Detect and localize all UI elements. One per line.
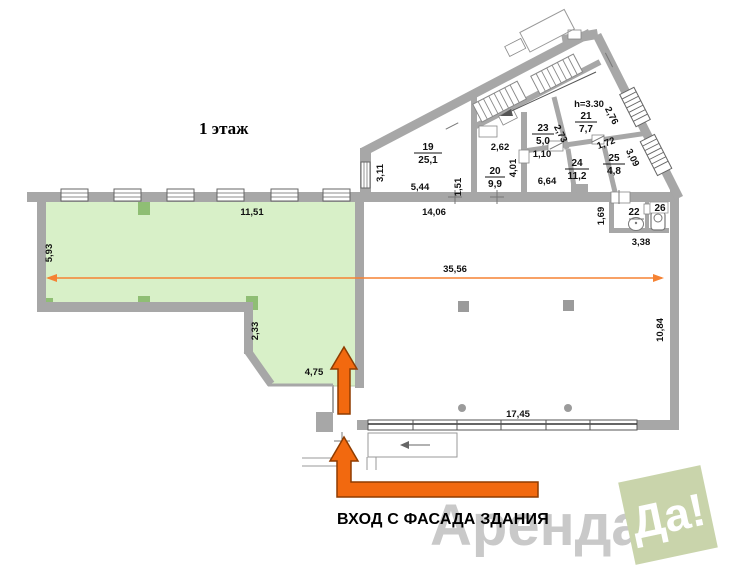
dim-r21-window: 2,76 [602, 105, 620, 126]
entrance-arrow-outer-icon [330, 437, 538, 497]
dim-hall-front: 17,45 [506, 409, 530, 420]
green-area [44, 196, 357, 386]
room-25-area: 4,8 [607, 166, 621, 177]
room-24-number: 24 [571, 158, 583, 169]
room-23-number: 23 [537, 123, 549, 134]
room-24-area: 11,2 [568, 171, 587, 182]
dim-green-step: 2,33 [250, 322, 261, 341]
dim-r20-right: 4,01 [508, 158, 519, 177]
toilet-icon [651, 212, 665, 230]
room-20-label: 20 9,9 [485, 166, 505, 190]
dim-hall-right: 10,84 [655, 317, 666, 341]
dim-hall-top: 14,06 [422, 207, 446, 218]
page-title: 1 этаж [199, 119, 249, 138]
dim-r19-bottom: 5,44 [411, 182, 430, 193]
room-21-label: 21 7,7 [575, 111, 597, 135]
dim-hall-length: 35,56 [443, 264, 467, 275]
room-21-number: 21 [580, 111, 592, 122]
dim-r20-top: 2,62 [491, 142, 510, 153]
room-26-number: 26 [654, 203, 666, 214]
columns [458, 300, 574, 412]
floor-plan-svg: 11,51 5,93 2,33 4,75 35,56 14,06 17,45 1… [0, 0, 752, 576]
floor-plan-page: 11,51 5,93 2,33 4,75 35,56 14,06 17,45 1… [0, 0, 752, 576]
entrance-caption: ВХОД С ФАСАДА ЗДАНИЯ [337, 511, 549, 528]
dim-r25-window: 3,09 [623, 147, 641, 168]
dim-green-top: 11,51 [240, 207, 264, 218]
room-19-label: 19 25,1 [414, 142, 442, 166]
porch-steps [302, 433, 457, 470]
window-band-bottom [368, 420, 637, 430]
window-diagonal-lower [640, 134, 672, 175]
dim-green-entry: 4,75 [305, 367, 324, 378]
dim-r21-height: h=3.30 [574, 99, 604, 110]
window-room19 [361, 162, 370, 188]
dim-r19-right: 1,51 [453, 177, 464, 196]
room-22-number: 22 [628, 207, 640, 218]
dim-corridor: 6,64 [538, 176, 557, 187]
dim-wc-left: 1,69 [596, 207, 607, 226]
watermark-badge: Да! [618, 465, 718, 565]
dim-arrowhead-right-icon [653, 274, 664, 282]
door-marks [479, 30, 650, 214]
dim-r23-door: 1,10 [533, 149, 552, 160]
room-25-number: 25 [608, 153, 620, 164]
dim-wc-bottom: 3,38 [632, 237, 651, 248]
room-19-number: 19 [422, 142, 434, 153]
room-20-area: 9,9 [488, 179, 502, 190]
step-arrow-icon [400, 441, 409, 449]
room-21-area: 7,7 [579, 124, 593, 135]
room-20-number: 20 [489, 166, 501, 177]
room-23-area: 5,0 [536, 136, 550, 147]
dim-r19-window: 3,11 [375, 163, 386, 182]
room-19-area: 25,1 [418, 155, 438, 166]
dim-green-left: 5,93 [44, 244, 55, 263]
window-diagonal-upper [620, 87, 651, 126]
